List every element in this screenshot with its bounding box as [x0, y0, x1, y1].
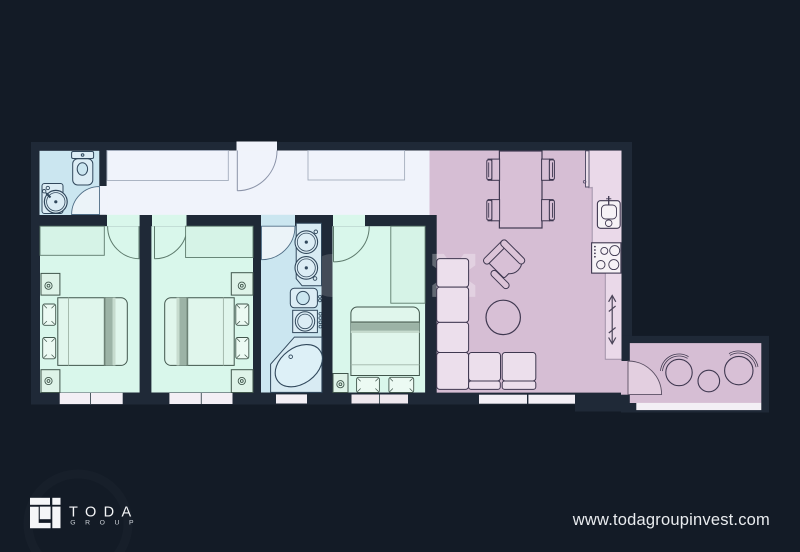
svg-text:www.todagroupinvest.com: www.todagroupinvest.com — [572, 511, 770, 529]
svg-text:GROUP: GROUP — [70, 520, 143, 527]
svg-text:TODA: TODA — [69, 505, 139, 521]
